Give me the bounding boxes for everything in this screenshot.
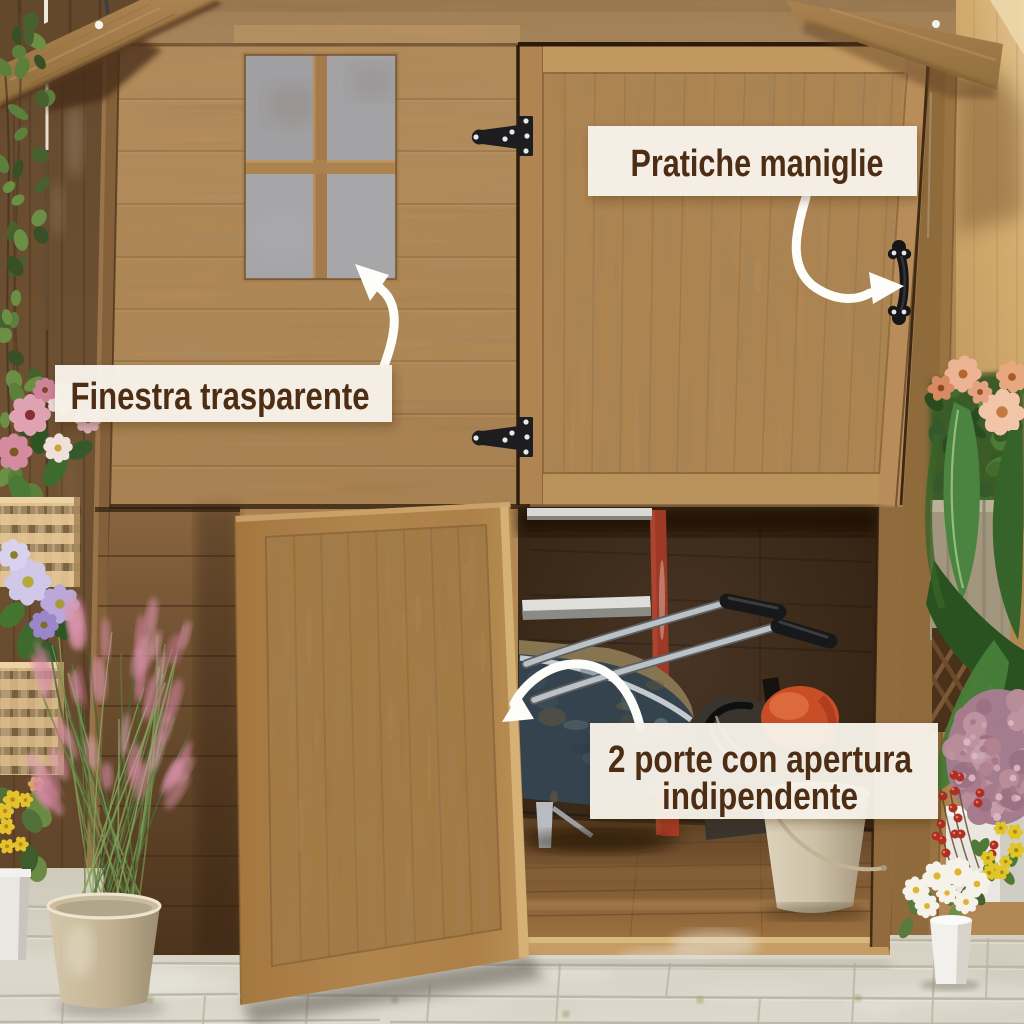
svg-text:Pratiche maniglie: Pratiche maniglie (631, 143, 884, 185)
svg-text:Finestra trasparente: Finestra trasparente (71, 376, 370, 418)
svg-text:2 porte con apertura: 2 porte con apertura (608, 739, 913, 781)
svg-text:indipendente: indipendente (662, 776, 858, 818)
